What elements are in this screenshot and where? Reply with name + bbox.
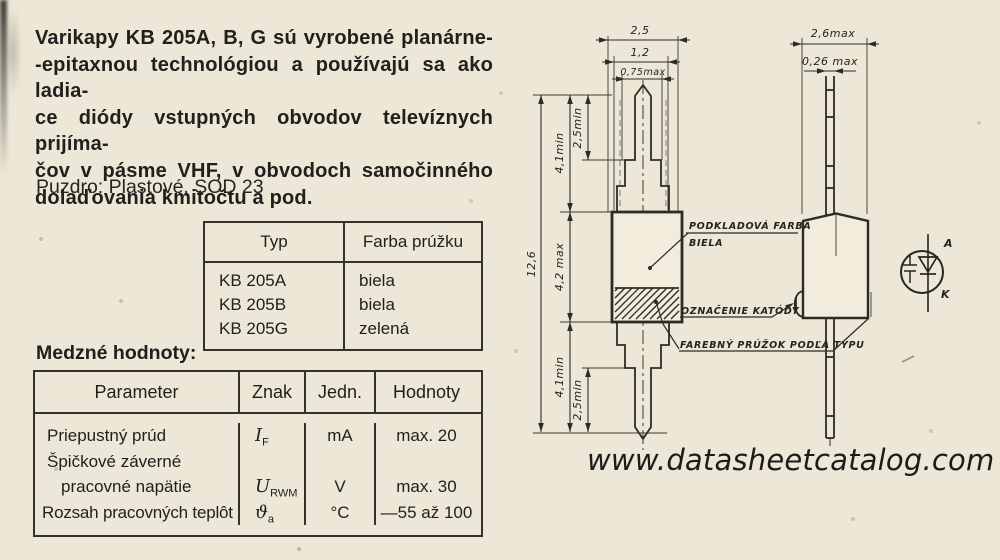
side-top-lead bbox=[826, 76, 834, 215]
label-stripe: FAREBNÝ PRÚŽOK PODĽA TYPU bbox=[680, 339, 865, 351]
dim-overall-length: 12,6 bbox=[525, 251, 538, 278]
dim-front-width: 2,5 bbox=[631, 24, 650, 37]
dim-front-width-tip: 0,75max bbox=[620, 67, 665, 78]
dim-tip-top: 2,5min bbox=[571, 107, 584, 148]
anode-label: A bbox=[943, 237, 953, 250]
dim-lead-top: 4,1min bbox=[553, 132, 566, 173]
datasheet-page: Varikapy KB 205A, B, G sú vyrobené planá… bbox=[0, 0, 1000, 560]
dim-side-lead: 0,26 max bbox=[802, 55, 858, 68]
package-side-view: 2,6max 0,26 max bbox=[790, 27, 914, 446]
dim-tip-bottom: 2,5min bbox=[571, 379, 584, 420]
package-body bbox=[612, 212, 682, 322]
side-body bbox=[803, 214, 868, 319]
dim-side-width: 2,6max bbox=[811, 27, 855, 40]
dim-front-width-mid: 1,2 bbox=[631, 46, 650, 59]
label-base-color: PODKLADOVÁ FARBA bbox=[689, 220, 811, 232]
dim-lead-bottom: 4,1min bbox=[553, 356, 566, 397]
cathode-label: K bbox=[941, 288, 951, 301]
package-front-view: 2,5 1,2 0,75max 12,6 4,1min 2,5min 4,2 m… bbox=[525, 24, 690, 450]
label-base-color-2: BIELA bbox=[689, 238, 723, 249]
varicap-symbol: A K bbox=[901, 234, 953, 312]
watermark: www.datasheetcatalog.com bbox=[587, 443, 994, 477]
dim-body-length: 4,2 max bbox=[553, 243, 566, 291]
side-bottom-lead bbox=[826, 318, 834, 446]
